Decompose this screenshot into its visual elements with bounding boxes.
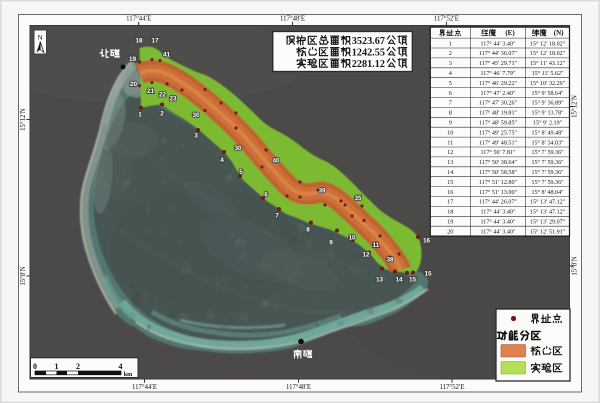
svg-text:16: 16 bbox=[447, 189, 453, 196]
svg-text:7: 7 bbox=[275, 213, 279, 220]
svg-text:117°44′E: 117°44′E bbox=[126, 16, 151, 23]
svg-text:17: 17 bbox=[151, 38, 159, 45]
svg-text:12: 12 bbox=[362, 252, 370, 259]
svg-text:km: km bbox=[124, 371, 133, 378]
svg-text:14: 14 bbox=[447, 169, 454, 176]
svg-text:2281.12: 2281.12 bbox=[352, 59, 385, 70]
svg-text:14: 14 bbox=[395, 277, 403, 284]
svg-text:13: 13 bbox=[447, 159, 453, 166]
svg-text:20: 20 bbox=[130, 81, 138, 88]
svg-text:117°52′E: 117°52′E bbox=[439, 384, 464, 391]
svg-text:12: 12 bbox=[447, 149, 453, 156]
svg-text:16: 16 bbox=[423, 238, 431, 245]
svg-text:15° 10′ 32.26″: 15° 10′ 32.26″ bbox=[530, 80, 566, 87]
svg-text:15° 13′ 47.12″: 15° 13′ 47.12″ bbox=[530, 199, 566, 206]
svg-text:38: 38 bbox=[386, 257, 394, 264]
svg-text:8: 8 bbox=[449, 110, 452, 117]
svg-text:117° 44′ 3.40″: 117° 44′ 3.40″ bbox=[480, 218, 515, 225]
svg-text:18: 18 bbox=[447, 209, 453, 216]
svg-text:15°12′N: 15°12′N bbox=[20, 108, 27, 131]
svg-text:13: 13 bbox=[376, 277, 384, 284]
svg-text:2: 2 bbox=[160, 111, 164, 118]
svg-text:117°44′E: 117°44′E bbox=[132, 384, 157, 391]
svg-text:117° 48′ 59.85″: 117° 48′ 59.85″ bbox=[479, 119, 518, 126]
svg-text:15° 9′ 36.89″: 15° 9′ 36.89″ bbox=[531, 100, 564, 107]
svg-text:10: 10 bbox=[447, 129, 453, 136]
svg-text:117° 44′ 36.07″: 117° 44′ 36.07″ bbox=[479, 50, 518, 57]
svg-text:21: 21 bbox=[147, 88, 155, 95]
svg-text:117°52′E: 117°52′E bbox=[434, 16, 459, 23]
svg-text:30: 30 bbox=[234, 145, 242, 152]
svg-text:5: 5 bbox=[449, 80, 452, 87]
svg-text:117°48′E: 117°48′E bbox=[280, 16, 305, 23]
svg-text:117° 44′ 3.40″: 117° 44′ 3.40″ bbox=[480, 228, 515, 235]
svg-text:117° 46′ 29.22″: 117° 46′ 29.22″ bbox=[479, 80, 518, 87]
svg-text:117° 50′ 7.81″: 117° 50′ 7.81″ bbox=[480, 149, 515, 156]
svg-text:35: 35 bbox=[354, 195, 362, 202]
svg-text:6: 6 bbox=[264, 192, 268, 199]
svg-text:15° 7′ 59.36″: 15° 7′ 59.36″ bbox=[531, 169, 564, 176]
svg-text:40: 40 bbox=[272, 158, 280, 165]
svg-text:22: 22 bbox=[159, 92, 167, 99]
svg-text:15° 12′ 18.02″: 15° 12′ 18.02″ bbox=[530, 50, 566, 57]
svg-text:11: 11 bbox=[373, 242, 380, 249]
svg-text:15° 13′ 47.12″: 15° 13′ 47.12″ bbox=[530, 209, 566, 216]
svg-text:3523.67: 3523.67 bbox=[352, 36, 385, 47]
svg-text:117° 51′ 12.80″: 117° 51′ 12.80″ bbox=[479, 179, 518, 186]
svg-text:15: 15 bbox=[409, 277, 417, 284]
svg-text:15° 9′ 13.78″: 15° 9′ 13.78″ bbox=[531, 110, 564, 117]
svg-text:20: 20 bbox=[447, 228, 453, 235]
svg-text:23: 23 bbox=[169, 96, 177, 103]
svg-text:6: 6 bbox=[449, 90, 452, 97]
svg-text:(E): (E) bbox=[505, 29, 515, 37]
svg-text:19: 19 bbox=[447, 218, 453, 225]
svg-text:11: 11 bbox=[447, 139, 453, 146]
svg-text:117° 51′ 13.00″: 117° 51′ 13.00″ bbox=[479, 189, 518, 196]
svg-text:15° 11′ 5.62″: 15° 11′ 5.62″ bbox=[532, 70, 564, 77]
svg-text:1: 1 bbox=[55, 362, 59, 371]
svg-text:15° 7′ 59.36″: 15° 7′ 59.36″ bbox=[531, 179, 564, 186]
svg-text:3: 3 bbox=[194, 133, 198, 140]
svg-text:117° 45′ 29.71″: 117° 45′ 29.71″ bbox=[479, 60, 518, 67]
svg-text:117° 46′ 7.79″: 117° 46′ 7.79″ bbox=[480, 70, 515, 77]
svg-text:3: 3 bbox=[449, 60, 452, 67]
svg-text:15: 15 bbox=[424, 271, 432, 278]
svg-text:15° 9′ 58.64″: 15° 9′ 58.64″ bbox=[531, 90, 564, 97]
svg-text:117° 49′ 48.51″: 117° 49′ 48.51″ bbox=[479, 139, 518, 146]
svg-text:1: 1 bbox=[449, 40, 452, 47]
svg-text:15° 8′ 34.03″: 15° 8′ 34.03″ bbox=[531, 139, 564, 146]
svg-text:15° 13′ 29.07″: 15° 13′ 29.07″ bbox=[530, 218, 566, 225]
svg-text:117° 47′ 30.26″: 117° 47′ 30.26″ bbox=[479, 100, 518, 107]
svg-text:15° 12′ 18.02″: 15° 12′ 18.02″ bbox=[530, 40, 566, 47]
svg-text:117° 50′ 38.64″: 117° 50′ 38.64″ bbox=[479, 159, 518, 166]
svg-text:10: 10 bbox=[348, 235, 356, 242]
svg-text:15° 7′ 59.36″: 15° 7′ 59.36″ bbox=[531, 149, 564, 156]
svg-text:7: 7 bbox=[449, 100, 452, 107]
svg-text:1242.55: 1242.55 bbox=[352, 47, 385, 58]
svg-text:15°8′N: 15°8′N bbox=[20, 266, 27, 285]
svg-text:15° 7′ 59.36″: 15° 7′ 59.36″ bbox=[531, 159, 564, 166]
svg-text:41: 41 bbox=[163, 52, 171, 59]
svg-text:2: 2 bbox=[76, 362, 80, 371]
svg-text:15°12′N: 15°12′N bbox=[572, 95, 579, 118]
svg-text:18: 18 bbox=[135, 38, 143, 45]
svg-text:9: 9 bbox=[449, 119, 452, 126]
svg-text:117° 50′ 58.58″: 117° 50′ 58.58″ bbox=[479, 169, 518, 176]
svg-text:39: 39 bbox=[318, 188, 326, 195]
svg-text:117°48′E: 117°48′E bbox=[286, 384, 311, 391]
svg-text:4: 4 bbox=[119, 362, 123, 371]
svg-text:15° 8′ 49.48″: 15° 8′ 49.48″ bbox=[531, 129, 564, 136]
svg-text:15° 11′ 43.12″: 15° 11′ 43.12″ bbox=[530, 60, 565, 67]
svg-text:8: 8 bbox=[306, 227, 310, 234]
svg-text:19: 19 bbox=[129, 56, 137, 63]
svg-text:15° 9′ 2.19″: 15° 9′ 2.19″ bbox=[533, 119, 563, 126]
svg-text:117° 49′ 25.75″: 117° 49′ 25.75″ bbox=[479, 129, 518, 136]
svg-text:117° 44′ 3.40″: 117° 44′ 3.40″ bbox=[480, 209, 515, 216]
svg-text:4: 4 bbox=[220, 157, 224, 164]
svg-text:9: 9 bbox=[329, 240, 333, 247]
svg-text:5: 5 bbox=[239, 169, 243, 176]
svg-text:N: N bbox=[38, 35, 43, 42]
svg-text:17: 17 bbox=[447, 199, 453, 206]
svg-text:117° 44′ 26.07″: 117° 44′ 26.07″ bbox=[479, 199, 518, 206]
svg-text:117° 47′ 2.40″: 117° 47′ 2.40″ bbox=[480, 90, 515, 97]
svg-text:(N): (N) bbox=[554, 29, 564, 37]
svg-text:15: 15 bbox=[447, 179, 453, 186]
svg-text:117° 44′ 3.40″: 117° 44′ 3.40″ bbox=[480, 40, 515, 47]
svg-text:15°8′N: 15°8′N bbox=[572, 256, 579, 275]
svg-text:1: 1 bbox=[138, 112, 142, 119]
svg-text:30: 30 bbox=[192, 112, 200, 119]
svg-text:0: 0 bbox=[33, 362, 37, 371]
svg-text:2: 2 bbox=[449, 50, 452, 57]
svg-text:117° 48′ 19.81″: 117° 48′ 19.81″ bbox=[479, 110, 518, 117]
svg-text:15° 12′ 51.91″: 15° 12′ 51.91″ bbox=[530, 228, 566, 235]
svg-text:15° 8′ 48.04″: 15° 8′ 48.04″ bbox=[531, 189, 564, 196]
